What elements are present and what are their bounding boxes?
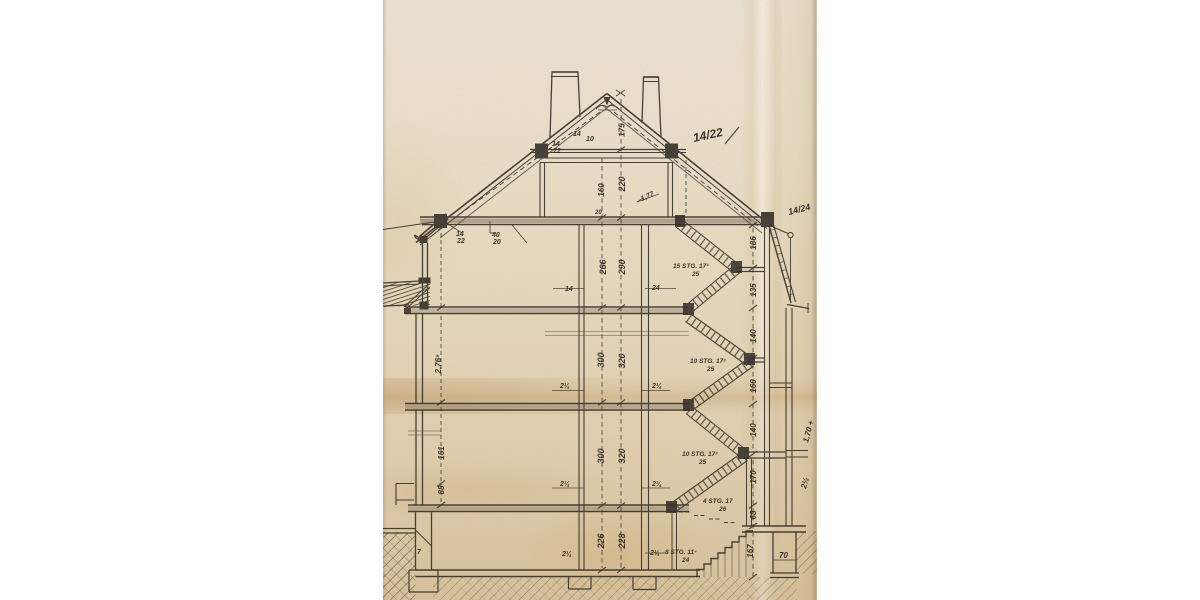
svg-text:161: 161 (437, 446, 446, 460)
svg-text:2¼: 2¼ (559, 383, 570, 390)
svg-text:10: 10 (586, 136, 594, 143)
svg-text:26: 26 (718, 506, 727, 513)
svg-text:266: 266 (598, 259, 608, 276)
svg-text:175: 175 (618, 123, 627, 137)
svg-text:14: 14 (573, 131, 581, 138)
svg-text:290: 290 (617, 259, 627, 275)
svg-text:135: 135 (749, 283, 758, 297)
svg-text:2¼: 2¼ (561, 551, 572, 558)
svg-text:4 STG. 17: 4 STG. 17 (702, 498, 733, 505)
svg-text:320: 320 (617, 448, 627, 463)
svg-text:160: 160 (597, 183, 606, 197)
svg-text:320: 320 (617, 353, 627, 368)
svg-text:2¼: 2¼ (649, 550, 660, 557)
svg-text:2¼: 2¼ (651, 383, 662, 390)
svg-text:220: 220 (617, 176, 627, 192)
svg-text:14: 14 (552, 141, 560, 148)
svg-text:10 STG. 17⁸: 10 STG. 17⁸ (682, 451, 718, 458)
svg-text:140: 140 (749, 329, 758, 343)
svg-text:14: 14 (456, 231, 464, 238)
svg-text:8 STG. 11⁴: 8 STG. 11⁴ (665, 549, 697, 556)
svg-text:2¼: 2¼ (559, 481, 570, 488)
svg-text:24: 24 (681, 557, 690, 564)
svg-text:20: 20 (594, 210, 602, 216)
svg-text:170: 170 (749, 470, 758, 484)
svg-text:228: 228 (617, 533, 627, 549)
svg-text:20: 20 (492, 239, 501, 246)
svg-text:25: 25 (691, 271, 700, 278)
svg-text:14: 14 (565, 286, 573, 293)
svg-text:68: 68 (749, 510, 758, 519)
svg-text:186: 186 (749, 236, 758, 250)
svg-text:300: 300 (596, 448, 606, 463)
svg-text:70: 70 (779, 551, 788, 560)
svg-text:2.76⁹: 2.76⁹ (434, 355, 443, 375)
svg-text:2¼: 2¼ (651, 481, 662, 488)
svg-text:226: 226 (596, 533, 606, 550)
svg-text:40: 40 (491, 232, 500, 239)
svg-text:22: 22 (456, 238, 465, 245)
svg-text:140: 140 (749, 423, 758, 437)
svg-text:22: 22 (552, 148, 561, 155)
svg-text:167: 167 (746, 544, 755, 558)
svg-text:300: 300 (596, 352, 606, 367)
svg-text:160: 160 (749, 379, 758, 393)
svg-text:25: 25 (706, 366, 715, 373)
svg-text:25: 25 (698, 459, 707, 466)
svg-text:15 STG. 17³: 15 STG. 17³ (673, 263, 709, 270)
svg-text:24: 24 (651, 285, 660, 292)
svg-text:88: 88 (437, 485, 446, 494)
svg-text:10 STG. 17⁸: 10 STG. 17⁸ (690, 358, 726, 365)
